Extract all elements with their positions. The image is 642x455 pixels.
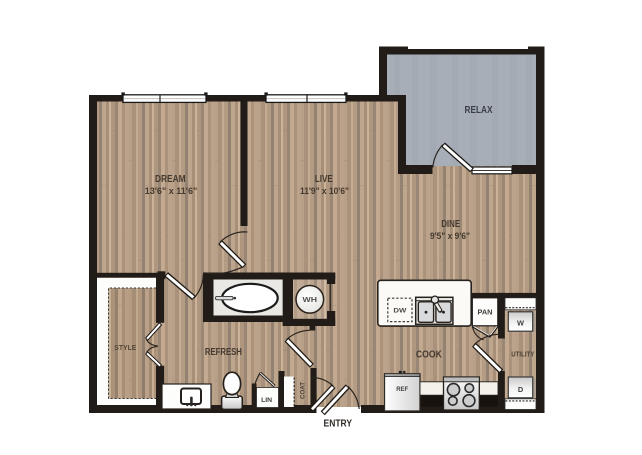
svg-text:REF: REF [396,386,408,393]
svg-text:DW: DW [393,308,407,315]
svg-text:ENTRY: ENTRY [324,417,353,429]
svg-text:DINE: DINE [441,219,460,230]
svg-text:PAN: PAN [478,310,493,317]
svg-text:STYLE: STYLE [114,345,136,352]
svg-text:LIN: LIN [261,397,272,404]
svg-text:LIVE: LIVE [315,174,333,185]
svg-text:W: W [517,318,524,327]
svg-text:9'5" x 9'6": 9'5" x 9'6" [430,231,470,241]
svg-text:COAT: COAT [300,382,307,399]
svg-text:D: D [518,385,524,394]
svg-text:RELAX: RELAX [465,105,493,116]
svg-text:DREAM: DREAM [155,174,186,185]
svg-text:COOK: COOK [416,350,442,361]
svg-text:REFRESH: REFRESH [205,347,242,358]
svg-text:11'9" x 10'6": 11'9" x 10'6" [300,186,349,196]
svg-text:13'6" x 11'6": 13'6" x 11'6" [145,186,198,196]
svg-text:UTILITY: UTILITY [511,352,534,359]
svg-text:WH: WH [303,295,318,304]
